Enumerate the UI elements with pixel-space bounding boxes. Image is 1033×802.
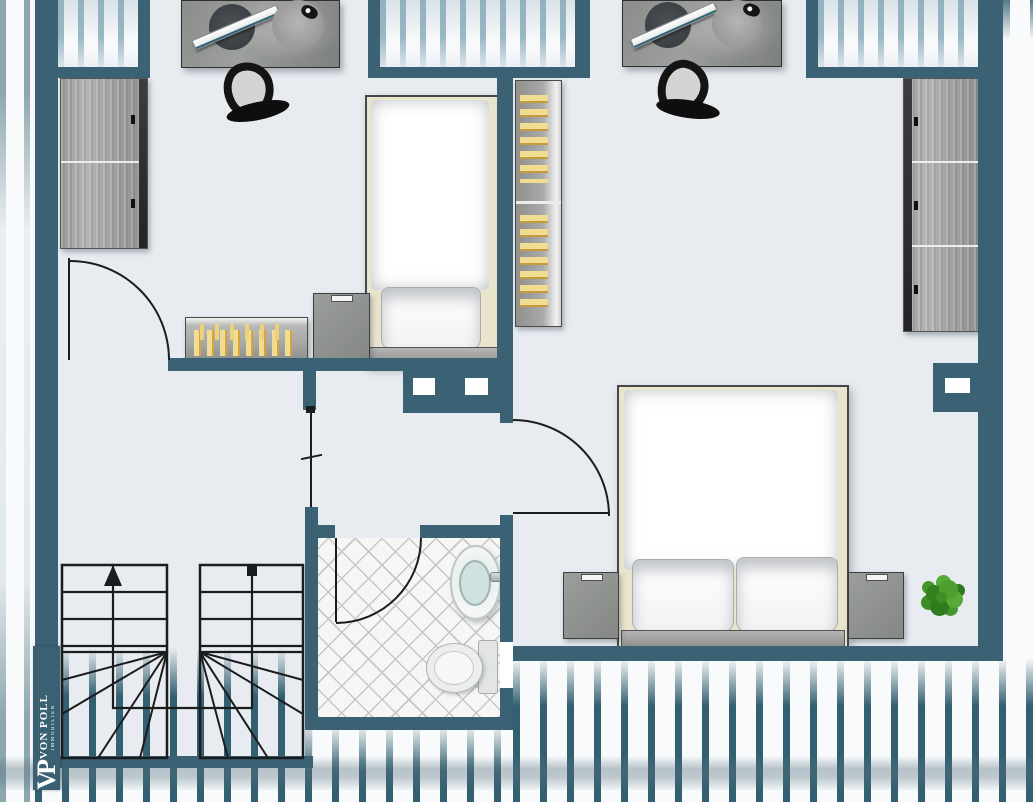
stair-treads <box>62 565 303 708</box>
von-poll-logo: VON POLL IMMOBILIEN VP <box>33 646 60 790</box>
logo-monogram: VP <box>34 763 60 790</box>
staircase-linework <box>0 0 1033 802</box>
logo-subtitle: IMMOBILIEN <box>51 704 56 751</box>
railing-line <box>302 406 321 506</box>
stair-winders <box>62 652 303 758</box>
logo-wordmark: VON POLL IMMOBILIEN <box>38 694 56 759</box>
stair-direction <box>104 565 257 586</box>
staircase <box>62 565 303 758</box>
logo-name: VON POLL <box>38 694 50 759</box>
floor-plan: VON POLL IMMOBILIEN VP <box>0 0 1033 802</box>
